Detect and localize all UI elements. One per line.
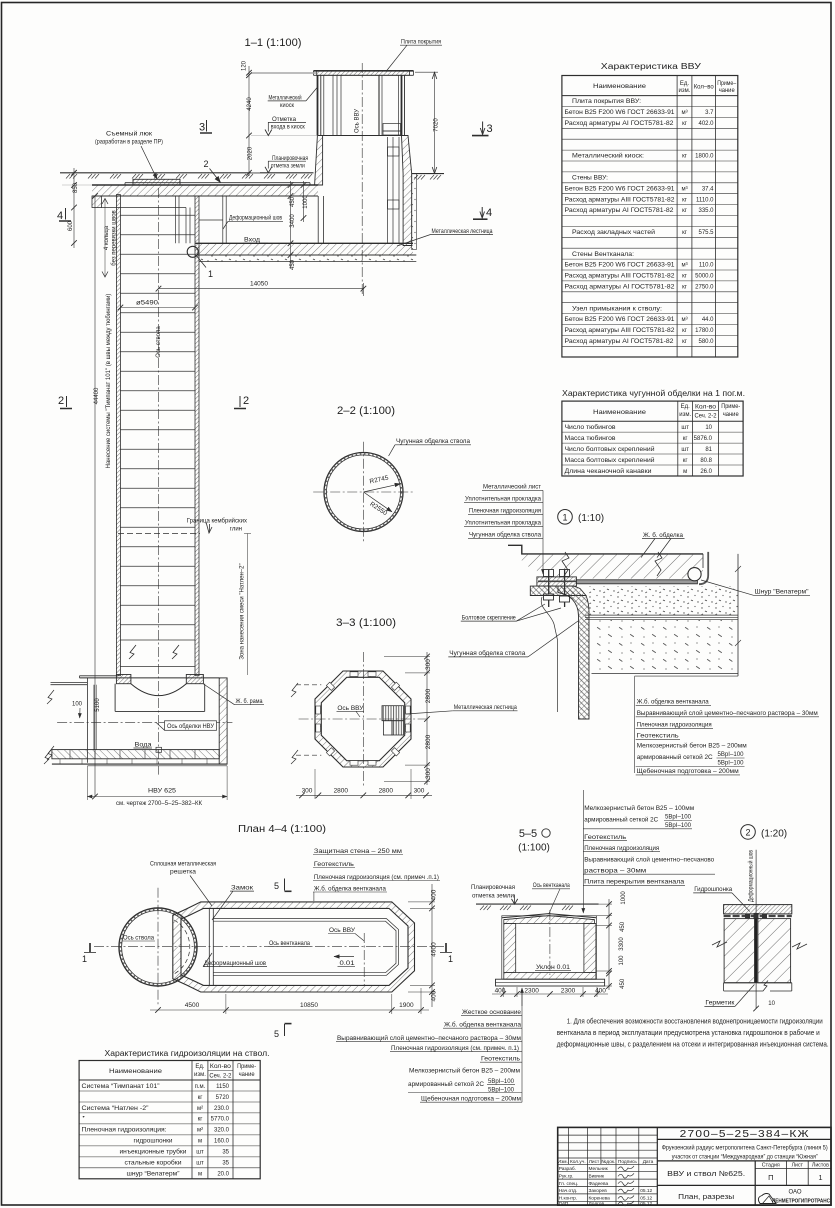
svg-text:850: 850 (73, 182, 79, 193)
svg-text:Шнур "Велатерм": Шнур "Велатерм" (755, 589, 810, 596)
svg-text:ВВУ и ствол №625.: ВВУ и ствол №625. (667, 1169, 745, 1178)
svg-text:5–5: 5–5 (519, 828, 537, 840)
svg-text:14050: 14050 (250, 281, 268, 288)
svg-text:п.м.: п.м. (195, 1084, 206, 1090)
svg-text:Ось ВВУ: Ось ВВУ (329, 928, 355, 934)
svg-text:Планировочная: Планировочная (272, 155, 308, 162)
svg-text:160.0: 160.0 (214, 1139, 230, 1145)
svg-text:отметка земли: отметка земли (472, 892, 514, 899)
svg-text:Кол–во: Кол–во (694, 85, 715, 91)
svg-text:Фрунзенский радиус метрополите: Фрунзенский радиус метрополитена Санкт-П… (662, 1144, 828, 1151)
svg-text:Ось ВВУ: Ось ВВУ (355, 109, 361, 133)
svg-text:м³: м³ (681, 186, 687, 192)
svg-text:Фадеева: Фадеева (589, 1181, 609, 1187)
svg-text:Ж. б. рама: Ж. б. рама (236, 697, 263, 705)
svg-text:Приме-: Приме- (721, 404, 740, 410)
svg-text:Мелкозернистый бетон В25 – 200: Мелкозернистый бетон В25 – 200мм (637, 742, 748, 750)
svg-text:0.01: 0.01 (340, 961, 356, 967)
svg-text:Наименование: Наименование (593, 84, 647, 90)
svg-text:Расход арматуры АIII ГОСТ5781-: Расход арматуры АIII ГОСТ5781-82 (565, 328, 676, 334)
svg-text:100: 100 (72, 702, 83, 708)
svg-text:Кол-во: Кол-во (695, 405, 717, 411)
svg-text:1000: 1000 (621, 891, 627, 905)
svg-text:1: 1 (818, 1173, 822, 1182)
svg-text:шт: шт (681, 447, 689, 453)
svg-text:Кол-во: Кол-во (210, 1064, 232, 1070)
svg-text:4240: 4240 (247, 97, 253, 111)
svg-text:3: 3 (199, 122, 205, 134)
svg-text:м³: м³ (681, 317, 687, 323)
svg-text:Характеристика ВВУ: Характеристика ВВУ (601, 62, 702, 71)
svg-text:Деформационный шов: Деформационный шов (747, 850, 755, 902)
svg-text:чание: чание (719, 88, 736, 94)
svg-text:Ось ствола: Ось ствола (123, 935, 155, 941)
svg-text:Чугунная обделка ствола: Чугунная обделка ствола (469, 531, 541, 539)
svg-text:Нанесение системы "Тимпанат 10: Нанесение системы "Тимпанат 101" (в швы … (106, 294, 112, 469)
svg-text:изм.: изм. (679, 88, 691, 94)
svg-text:кг: кг (682, 121, 688, 127)
svg-text:Геотекстиль: Геотекстиль (481, 1056, 521, 1063)
svg-text:Масса тюбингов: Масса тюбингов (565, 436, 616, 442)
svg-text:Жесткое основание: Жесткое основание (462, 1009, 521, 1016)
svg-text:450: 450 (290, 259, 296, 270)
svg-text:м: м (198, 1139, 202, 1145)
svg-text:Ед.: Ед. (681, 404, 691, 410)
svg-text:Долгов: Долгов (589, 1201, 605, 1207)
svg-text:Стадия: Стадия (762, 1163, 780, 1169)
svg-text:Ед.: Ед. (680, 81, 690, 87)
svg-text:37.4: 37.4 (702, 186, 714, 192)
svg-text:Вода: Вода (135, 742, 152, 749)
svg-text:Замок: Замок (231, 884, 253, 891)
svg-text:5ВрI–100: 5ВрI–100 (718, 760, 744, 767)
svg-text:Ось вентканала: Ось вентканала (269, 941, 311, 947)
svg-text:кг: кг (682, 328, 688, 334)
svg-text:Ед.: Ед. (195, 1064, 205, 1070)
svg-text:Н.контр.: Н.контр. (559, 1196, 577, 1202)
svg-text:Мелкозернистый бетон В25 – 100: Мелкозернистый бетон В25 – 100мм (584, 804, 695, 812)
svg-text:стальные коробки: стальные коробки (125, 1161, 182, 1167)
svg-text:Бетон В25 F200 W6 ГОСТ 26633-9: Бетон В25 F200 W6 ГОСТ 26633-91 (565, 317, 676, 323)
svg-text:Гидрошпонка: Гидрошпонка (694, 886, 732, 893)
svg-text:4: 4 (57, 210, 63, 222)
svg-text:44400: 44400 (94, 387, 100, 404)
svg-text:Пленочная гидроизоляция:: Пленочная гидроизоляция: (82, 1128, 167, 1134)
svg-text:№док.: №док. (601, 1159, 615, 1165)
svg-text:1150: 1150 (216, 1084, 230, 1090)
svg-text:вентканала в период эксплуатац: вентканала в период эксплуатации предусм… (557, 1028, 820, 1037)
svg-text:450: 450 (620, 978, 626, 989)
svg-text:81: 81 (705, 447, 712, 453)
svg-text:Ось вентканала: Ось вентканала (533, 883, 571, 889)
svg-text:2: 2 (58, 395, 64, 407)
svg-text:Плита перекрытия вентканала: Плита перекрытия вентканала (584, 879, 684, 886)
svg-text:Узел примыкания к стволу:: Узел примыкания к стволу: (572, 306, 662, 312)
svg-text:кг: кг (682, 230, 688, 236)
svg-text:кг: кг (683, 458, 689, 464)
svg-text:’: ’ (82, 1117, 86, 1123)
svg-text:входа в киоск: входа в киоск (271, 124, 305, 131)
svg-text:Приме–: Приме– (717, 81, 737, 87)
svg-text:Уплотнительная прокладка: Уплотнительная прокладка (465, 520, 541, 527)
svg-text:35: 35 (222, 1150, 229, 1156)
svg-text:чание: чание (723, 412, 740, 418)
svg-text:чание: чание (239, 1072, 256, 1078)
svg-text:глин: глин (230, 527, 242, 533)
svg-text:Болтовое скрепление: Болтовое скрепление (462, 614, 516, 621)
svg-text:Характеристика чугунной обделк: Характеристика чугунной обделки на 1 пог… (562, 389, 745, 398)
svg-text:Бетон В25 F200 W6 ГОСТ 26633-9: Бетон В25 F200 W6 ГОСТ 26633-91 (565, 186, 676, 192)
svg-text:300: 300 (425, 768, 432, 779)
svg-text:Стены Вентканала:: Стены Вентканала: (572, 252, 634, 258)
svg-text:2300: 2300 (561, 987, 576, 994)
svg-text:Чугунная обделка ствола: Чугунная обделка ствола (449, 649, 525, 657)
svg-text:1: 1 (208, 269, 213, 279)
svg-text:м²: м² (197, 1128, 203, 1134)
svg-text:киоск: киоск (280, 102, 294, 109)
svg-text:Число тюбингов: Число тюбингов (565, 425, 616, 431)
svg-text:ОАО: ОАО (788, 1190, 801, 1196)
svg-text:600: 600 (68, 220, 74, 231)
svg-text:армированный сеткой 2С: армированный сеткой 2С (584, 816, 658, 824)
svg-text:Мельник: Мельник (589, 1166, 609, 1172)
svg-text:Пленочная гидроизоляция (см. п: Пленочная гидроизоляция (см. примеч. п.1… (391, 1045, 519, 1052)
svg-text:шнур “Велатерм”: шнур “Велатерм” (127, 1172, 180, 1178)
svg-text:1: 1 (82, 954, 87, 964)
svg-text:кг: кг (682, 285, 688, 291)
svg-text:400: 400 (595, 987, 606, 994)
svg-text:Рук.гр.: Рук.гр. (559, 1173, 574, 1179)
svg-text:кг: кг (198, 1117, 204, 1123)
svg-text:(разработан в разделе ПР): (разработан в разделе ПР) (95, 137, 163, 145)
svg-text:3300: 3300 (619, 937, 625, 951)
svg-text:3: 3 (487, 123, 493, 135)
svg-text:Металлическая лестница: Металлическая лестница (454, 704, 517, 711)
svg-text:Пленочная гидроизоляция: Пленочная гидроизоляция (469, 508, 541, 515)
svg-text:Ж.б. обделка вентканала: Ж.б. обделка вентканала (444, 1021, 521, 1029)
svg-text:Приме-: Приме- (237, 1064, 256, 1070)
svg-text:Стены ВВУ:: Стены ВВУ: (572, 176, 608, 182)
svg-text:80.8: 80.8 (700, 458, 712, 464)
svg-text:Геотекстиль: Геотекстиль (637, 733, 680, 740)
svg-text:кг: кг (682, 197, 688, 203)
svg-text:Система “Тимпанат 101”: Система “Тимпанат 101” (82, 1084, 160, 1090)
svg-text:Геотекстиль: Геотекстиль (584, 834, 627, 841)
svg-text:Разраб.: Разраб. (559, 1166, 576, 1172)
svg-text:Деформационный шов: Деформационный шов (204, 959, 266, 967)
svg-text:Лист: Лист (589, 1159, 600, 1165)
svg-text:Пленочная гидроизоляция (см. п: Пленочная гидроизоляция (см. примеч .п.1… (314, 874, 439, 881)
svg-text:Щебеночная подготовка – 200мм: Щебеночная подготовка – 200мм (421, 1095, 522, 1103)
svg-text:2750.0: 2750.0 (695, 285, 714, 291)
svg-text:деформационные швы, с разделен: деформационные швы, с разделением на отс… (557, 1039, 829, 1048)
svg-text:5770.0: 5770.0 (211, 1117, 230, 1123)
svg-text:Герметик: Герметик (705, 1000, 734, 1007)
svg-text:кг: кг (682, 208, 688, 214)
svg-text:5ВрI–100: 5ВрI–100 (718, 751, 744, 758)
svg-text:см. чертеж 2700–5–25–382–КК: см. чертеж 2700–5–25–382–КК (116, 800, 202, 807)
svg-text:1800.0: 1800.0 (695, 154, 714, 160)
svg-text:м: м (683, 469, 687, 475)
svg-text:575.5: 575.5 (698, 230, 714, 236)
svg-text:Бетон В25 F200 W6 ГОСТ 26633-9: Бетон В25 F200 W6 ГОСТ 26633-91 (565, 263, 676, 269)
svg-text:Съемный люк: Съемный люк (106, 129, 152, 137)
svg-text:1900: 1900 (399, 1002, 414, 1009)
svg-text:План 4–4 (1:100): План 4–4 (1:100) (238, 824, 326, 835)
svg-text:450: 450 (620, 921, 626, 932)
svg-text:Подпись: Подпись (618, 1159, 637, 1165)
svg-text:110.0: 110.0 (699, 263, 714, 269)
svg-text:2800: 2800 (379, 788, 394, 795)
svg-text:5: 5 (274, 881, 279, 891)
svg-text:1000: 1000 (303, 195, 309, 209)
svg-text:Бетон В25 F200 W6 ГОСТ 26633-9: Бетон В25 F200 W6 ГОСТ 26633-91 (565, 110, 676, 116)
svg-text:П: П (768, 1173, 773, 1182)
svg-text:20.0: 20.0 (217, 1172, 229, 1178)
svg-text:Наименование: Наименование (109, 1069, 163, 1075)
svg-text:10: 10 (705, 425, 712, 431)
svg-text:5ВрI–100: 5ВрI–100 (665, 822, 691, 829)
svg-text:320.0: 320.0 (214, 1128, 230, 1134)
svg-text:(1:20): (1:20) (761, 829, 787, 840)
svg-text:Ось обделки НВУ: Ось обделки НВУ (167, 724, 214, 730)
svg-text:шт: шт (681, 425, 689, 431)
svg-text:гидрошпонки: гидрошпонки (134, 1139, 173, 1145)
svg-text:Пленочная гидроизоляция: Пленочная гидроизоляция (584, 845, 659, 852)
svg-text:м²: м² (197, 1106, 203, 1112)
svg-text:Вивчик: Вивчик (589, 1173, 605, 1179)
svg-text:Ж.б. обделка вентканала: Ж.б. обделка вентканала (314, 884, 386, 892)
svg-text:1. Для обеспечения возможности: 1. Для обеспечения возможности восстанов… (567, 1016, 823, 1025)
svg-text:Расход арматуры АI ГОСТ5781-82: Расход арматуры АI ГОСТ5781-82 (565, 121, 675, 127)
svg-text:2800: 2800 (425, 734, 432, 749)
svg-text:Гл. спец.: Гл. спец. (559, 1181, 579, 1187)
svg-text:Металлическая лестница: Металлическая лестница (432, 228, 493, 235)
svg-text:кг: кг (682, 274, 688, 280)
svg-text:Сплошная металлическая: Сплошная металлическая (150, 860, 216, 867)
svg-text:участок от станции “Международ: участок от станции “Международная” до ст… (672, 1154, 818, 1160)
svg-text:Щебеночная подготовка – 200мм: Щебеночная подготовка – 200мм (637, 767, 740, 775)
svg-text:1: 1 (448, 954, 453, 964)
svg-text:ЛЕНМЕТРОГИПРОТРАНС: ЛЕНМЕТРОГИПРОТРАНС (772, 1199, 830, 1205)
svg-text:4600: 4600 (431, 942, 438, 957)
svg-text:Расход арматуры АIII ГОСТ5781-: Расход арматуры АIII ГОСТ5781-82 (565, 274, 676, 280)
svg-text:ГИП: ГИП (559, 1201, 569, 1207)
svg-text:402.0: 402.0 (698, 121, 714, 127)
svg-text:кг: кг (683, 436, 689, 442)
svg-text:Зона нанесения смеси "Натлен–2: Зона нанесения смеси "Натлен–2" (240, 563, 246, 659)
svg-text:Уплотнительная прокладка: Уплотнительная прокладка (465, 496, 541, 503)
svg-text:Плита покрытия ВВУ:: Плита покрытия ВВУ: (572, 99, 641, 105)
svg-text:Длина чеканочной канавки: Длина чеканочной канавки (565, 468, 652, 475)
svg-text:Коренева: Коренева (589, 1196, 611, 1202)
svg-text:2: 2 (204, 159, 209, 169)
svg-text:Металлический киоск:: Металлический киоск: (572, 153, 644, 160)
svg-text:10850: 10850 (300, 1002, 318, 1009)
svg-text:Сеч. 2-2: Сеч. 2-2 (209, 1074, 232, 1080)
svg-text:ø5490: ø5490 (136, 300, 158, 307)
svg-text:400: 400 (431, 889, 438, 900)
svg-text:Расход арматуры АI ГОСТ5781-82: Расход арматуры АI ГОСТ5781-82 (565, 208, 675, 214)
svg-text:Ж. б. обделка: Ж. б. обделка (643, 531, 683, 539)
svg-text:Чугунная обделка ствола: Чугунная обделка ствола (396, 437, 470, 445)
svg-text:армированный сеткой 2С: армированный сеткой 2С (408, 1080, 484, 1088)
svg-text:2800: 2800 (334, 788, 349, 795)
svg-text:Масса болтовых скреплений: Масса болтовых скреплений (565, 457, 655, 464)
svg-text:450: 450 (290, 196, 296, 207)
svg-text:3400: 3400 (290, 214, 296, 228)
svg-text:Ось ВВУ: Ось ВВУ (337, 706, 363, 712)
svg-text:2300: 2300 (524, 987, 539, 994)
svg-text:Изм.: Изм. (558, 1159, 568, 1165)
svg-text:3–3 (1:100): 3–3 (1:100) (336, 617, 396, 629)
svg-text:Выравнивающий слой цементно–пе: Выравнивающий слой цементно–песчаного ра… (637, 709, 819, 717)
svg-text:Металлический лист: Металлический лист (483, 483, 541, 491)
svg-text:Дата: Дата (643, 1159, 654, 1165)
svg-text:Расход арматуры АI ГОСТ5781-82: Расход арматуры АI ГОСТ5781-82 (565, 339, 675, 345)
svg-text:Лист: Лист (792, 1163, 804, 1169)
svg-text:2800: 2800 (425, 688, 432, 703)
svg-text:Отметка: Отметка (272, 116, 296, 123)
svg-text:05.12: 05.12 (640, 1201, 652, 1207)
svg-text:2020: 2020 (248, 146, 254, 160)
svg-text:10: 10 (768, 1001, 775, 1007)
svg-text:Сеч. 2-2: Сеч. 2-2 (695, 414, 718, 420)
svg-text:2700–5–25–384–КЖ: 2700–5–25–384–КЖ (680, 1129, 810, 1140)
svg-text:300: 300 (302, 788, 313, 795)
svg-text:шт: шт (196, 1161, 204, 1167)
svg-text:изм.: изм. (679, 412, 691, 418)
svg-text:План, разрезы: План, разрезы (678, 1192, 734, 1201)
svg-text:Деформационный шов: Деформационный шов (229, 214, 282, 222)
svg-text:1110.0: 1110.0 (696, 197, 714, 203)
svg-text:5100: 5100 (95, 698, 101, 712)
svg-text:(1:10): (1:10) (578, 513, 604, 524)
svg-text:5: 5 (274, 1029, 279, 1039)
svg-text:Защитная стена – 250 мм: Защитная стена – 250 мм (314, 848, 403, 855)
svg-text:Нач.отд.: Нач.отд. (559, 1188, 578, 1194)
svg-text:Геотекстиль: Геотекстиль (314, 861, 355, 868)
svg-text:решетка: решетка (170, 868, 196, 875)
svg-text:Кол.уч.: Кол.уч. (570, 1159, 586, 1165)
svg-text:3.7: 3.7 (705, 110, 714, 116)
svg-text:5ВрI–100: 5ВрI–100 (488, 1078, 514, 1085)
svg-text:2: 2 (243, 395, 249, 407)
svg-text:кг: кг (682, 154, 688, 160)
svg-text:Мелкозернистый бетон В25 – 200: Мелкозернистый бетон В25 – 200мм (409, 1067, 521, 1075)
svg-text:Ось ствола: Ось ствола (156, 326, 162, 358)
svg-text:Уклон 0.01: Уклон 0.01 (536, 965, 571, 971)
svg-text:Число болтовых скреплений: Число болтовых скреплений (565, 446, 655, 453)
svg-text:м: м (198, 1172, 202, 1178)
svg-text:580.0: 580.0 (698, 339, 714, 345)
svg-text:100: 100 (619, 955, 625, 966)
svg-text:Расход закладных частей: Расход закладных частей (572, 229, 655, 236)
svg-text:120: 120 (242, 60, 248, 71)
svg-text:Листов: Листов (812, 1163, 829, 1169)
svg-text:5720: 5720 (216, 1095, 230, 1101)
svg-text:Металлический: Металлический (269, 94, 302, 102)
svg-text:2–2 (1:100): 2–2 (1:100) (337, 405, 395, 417)
svg-text:Расход арматуры АI ГОСТ5781-8: Расход арматуры АI ГОСТ5781-82 (565, 285, 676, 291)
svg-text:35: 35 (222, 1161, 229, 1167)
svg-text:(1:100): (1:100) (518, 843, 550, 854)
svg-text:Система “Натлен -2”: Система “Натлен -2” (82, 1106, 149, 1112)
svg-text:300: 300 (414, 788, 425, 795)
svg-text:4: 4 (486, 207, 492, 219)
svg-text:335.0: 335.0 (698, 208, 714, 214)
svg-text:7020: 7020 (434, 118, 440, 132)
svg-text:м³: м³ (681, 263, 687, 269)
svg-text:5000.0: 5000.0 (695, 274, 714, 280)
svg-text:Плита покрытия: Плита покрытия (401, 39, 441, 46)
svg-text:кг: кг (198, 1095, 204, 1101)
svg-text:4500: 4500 (185, 1002, 200, 1009)
svg-text:НВУ 625: НВУ 625 (148, 788, 176, 795)
svg-text:26.0: 26.0 (700, 469, 712, 475)
svg-text:кг: кг (682, 339, 688, 345)
svg-text:Пленочная гидроизоляция: Пленочная гидроизоляция (637, 722, 712, 729)
svg-text:Выравнивающий слой цементно–пе: Выравнивающий слой цементно–песчаново (584, 856, 714, 864)
svg-text:изм.: изм. (194, 1072, 206, 1078)
svg-text:Закорев: Закорев (589, 1188, 608, 1194)
svg-text:м³: м³ (681, 110, 687, 116)
svg-text:2: 2 (745, 828, 750, 838)
svg-text:44.0: 44.0 (702, 317, 714, 323)
svg-text:Планировочная: Планировочная (471, 884, 515, 891)
svg-text:шт: шт (196, 1150, 204, 1156)
svg-text:Граница кембрийских: Граница кембрийских (187, 518, 247, 525)
svg-text:Выравнивающий слой цементно–пе: Выравнивающий слой цементно–песчаного ра… (337, 1034, 522, 1042)
svg-text:05.12: 05.12 (640, 1188, 652, 1194)
svg-text:Расход арматуры АIII ГОСТ5781-: Расход арматуры АIII ГОСТ5781-82 (565, 197, 676, 203)
svg-text:5876.0: 5876.0 (694, 436, 713, 442)
svg-text:Наименование: Наименование (593, 410, 647, 416)
svg-text:1–1 (1:100): 1–1 (1:100) (245, 37, 302, 49)
svg-text:армированный сеткой 2С: армированный сеткой 2С (637, 753, 713, 761)
svg-text:Характеристика гидроизоляции н: Характеристика гидроизоляции на ствол. (105, 1049, 270, 1058)
svg-text:1: 1 (562, 513, 567, 523)
svg-text:инъекционные трубки: инъекционные трубки (120, 1150, 187, 1156)
svg-text:300: 300 (425, 659, 432, 670)
svg-text:230.0: 230.0 (214, 1106, 230, 1112)
svg-text:отметка земли: отметка земли (271, 162, 305, 169)
svg-text:400: 400 (431, 990, 438, 1001)
svg-text:400: 400 (495, 987, 506, 994)
svg-text:5ВрI–100: 5ВрI–100 (665, 814, 691, 821)
svg-text:Ж.б. обделка вентканала: Ж.б. обделка вентканала (637, 698, 709, 706)
svg-text:05.12: 05.12 (640, 1196, 652, 1202)
svg-text:Вход: Вход (244, 237, 260, 244)
svg-text:раствора – 30мм: раствора – 30мм (584, 868, 647, 875)
svg-text:1780.0: 1780.0 (695, 328, 714, 334)
